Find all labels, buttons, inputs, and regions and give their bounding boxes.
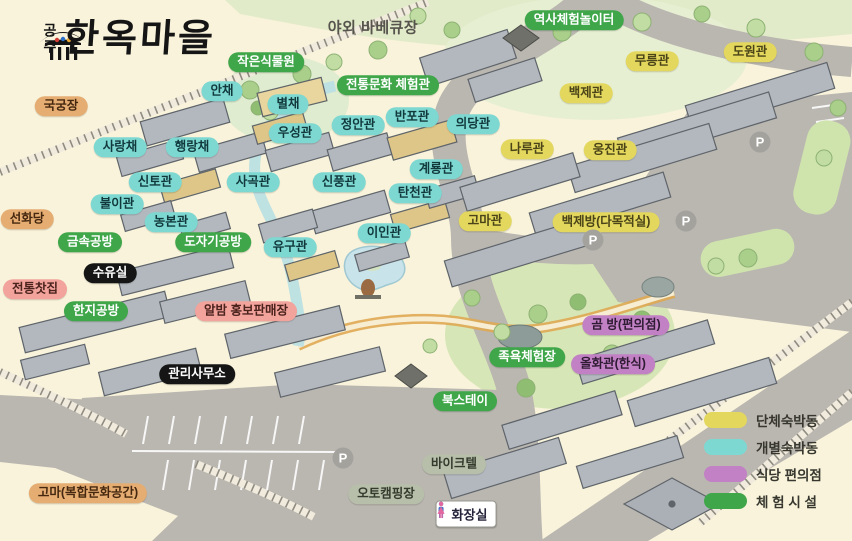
parking-icon: P	[333, 448, 354, 469]
legend-item-group: 단체숙박동	[704, 410, 822, 430]
map-label-outdoor-bbq: 야외 바베큐장	[328, 21, 418, 36]
map-label-auto-camping: 오토캠핑장	[348, 484, 424, 504]
legend-item-individual: 개별숙박동	[704, 437, 822, 457]
legend-item-food: 식당 편의점	[704, 464, 822, 484]
map-label-haengrangchae: 행랑채	[166, 137, 219, 157]
legend-swatch	[704, 439, 747, 455]
map-label-iin: 이인관	[358, 223, 411, 243]
legend-swatch	[704, 493, 747, 509]
map-label-olhwagwan: 올화관(한식)	[571, 354, 655, 374]
map-label-albam-shop: 알밤 홍보판매장	[195, 301, 297, 321]
map-label-anchae: 안채	[201, 81, 242, 101]
legend-label: 식당 편의점	[756, 464, 822, 484]
map-label-useong: 우성관	[269, 123, 322, 143]
map-label-history-play: 역사체험놀이터	[525, 10, 624, 30]
map-label-sinpung: 신풍관	[313, 172, 366, 192]
map-label-foot-bath: 족욕체험장	[489, 347, 565, 367]
toilet-badge: 화장실	[436, 501, 497, 528]
map-label-tea-house: 전통찻집	[3, 279, 67, 299]
map-label-mureung: 무릉관	[626, 51, 679, 71]
map-label-buli: 불이관	[91, 194, 144, 214]
map-label-hanji-workshop: 한지공방	[64, 301, 128, 321]
map-label-biketel: 바이크텔	[422, 454, 486, 474]
legend-label: 단체숙박동	[756, 410, 818, 430]
map-label-tradition-center: 전통문화 체험관	[337, 75, 439, 95]
map-label-uidang: 의당관	[447, 114, 500, 134]
map-label-pottery-workshop: 도자기공방	[175, 232, 251, 252]
legend-label: 체 험 시 설	[756, 491, 817, 511]
map-label-baekje: 백제관	[560, 83, 613, 103]
map-label-sarangchae: 사랑채	[94, 137, 147, 157]
map-label-sagok: 사곡관	[227, 172, 280, 192]
map-label-goma-culture: 고마(복합문화공간)	[29, 483, 147, 503]
map-label-sinto: 신토관	[129, 172, 182, 192]
map-label-jeongan: 정안관	[332, 115, 385, 135]
parking-icon: P	[583, 230, 604, 251]
map-label-baekjebang: 백제방(다목적실)	[553, 212, 660, 232]
map-label-book-stay: 북스테이	[433, 391, 497, 411]
map-label-small-garden: 작은식물원	[228, 52, 304, 72]
legend-item-experience: 체 험 시 설	[704, 491, 822, 511]
map-label-gukgung: 국궁장	[35, 96, 88, 116]
map-label-naru: 나루관	[501, 139, 554, 159]
parking-icon: P	[676, 211, 697, 232]
map-label-tancheon: 탄천관	[389, 183, 442, 203]
map-label-metal-workshop: 금속공방	[58, 232, 122, 252]
toilet-label: 화장실	[452, 505, 488, 524]
map-label-seonhwadang: 선화당	[1, 209, 54, 229]
map-label-gyeryong: 계룡관	[410, 159, 463, 179]
legend-label: 개별숙박동	[756, 437, 818, 457]
map-label-office: 관리사무소	[159, 364, 235, 384]
map-label-dowon: 도원관	[724, 42, 777, 62]
map-label-goma-hall: 고마관	[459, 211, 512, 231]
map-label-byeolchae: 별채	[267, 94, 308, 114]
legend-swatch	[704, 412, 747, 428]
map-label-banpo: 반포관	[386, 107, 439, 127]
legend: 단체숙박동개별숙박동식당 편의점체 험 시 설	[704, 410, 822, 511]
legend-swatch	[704, 466, 747, 482]
map-label-ungjin: 웅진관	[584, 140, 637, 160]
map-label-nongbon: 농본관	[145, 212, 198, 232]
hanok-village-map: 공주 한옥마을 야외 바베큐장역사체험놀이터작은식물원무릉관도원관국궁장안채별채…	[0, 0, 852, 541]
map-label-gom-bang: 곰 방(편의점)	[582, 315, 669, 335]
parking-icon: P	[750, 132, 771, 153]
map-label-nursing-room: 수유실	[84, 263, 137, 283]
map-label-yugu: 유구관	[264, 237, 317, 257]
